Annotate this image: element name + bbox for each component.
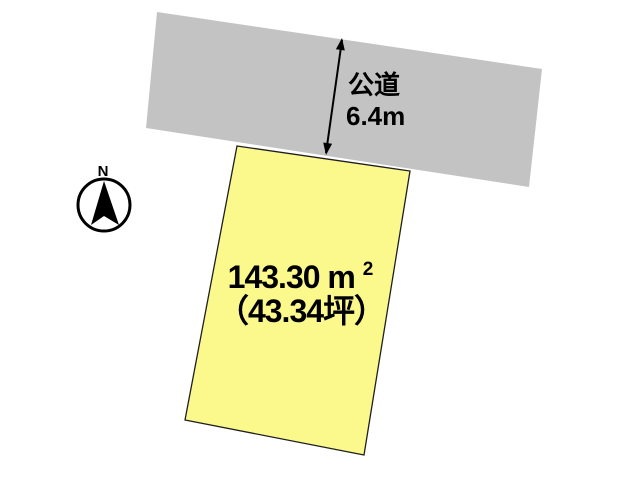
road-width-label: 6.4m xyxy=(346,101,405,131)
north-label: N xyxy=(98,163,109,180)
parcel-area-unit-exponent: 2 xyxy=(363,259,373,280)
north-compass: N xyxy=(78,163,130,231)
road-group xyxy=(146,12,542,187)
parcel-area-number: 143.30 xyxy=(228,259,320,295)
parcel-area-m2-label: 143.30 m 2 xyxy=(228,259,373,295)
road-shape xyxy=(146,12,542,187)
site-plan-diagram: 公道 6.4m 143.30 m 2 （43.34坪） N xyxy=(0,0,640,480)
parcel-area-unit: m xyxy=(327,259,354,295)
road-name-label: 公道 xyxy=(348,70,400,100)
parcel-area-tsubo-label: （43.34坪） xyxy=(217,293,385,329)
north-arrow-icon xyxy=(91,181,119,225)
